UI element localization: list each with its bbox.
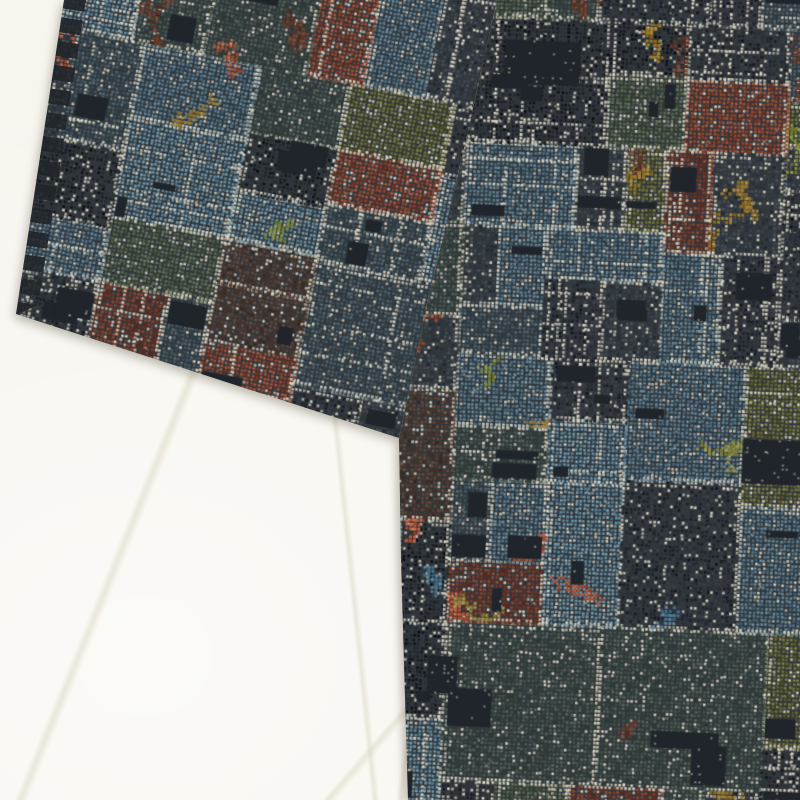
fabric-weave-canvas-left bbox=[0, 0, 800, 800]
kimono-left-panel bbox=[0, 0, 800, 800]
left-panel-shadow-wrap bbox=[0, 0, 800, 800]
photo-stage bbox=[0, 0, 800, 800]
